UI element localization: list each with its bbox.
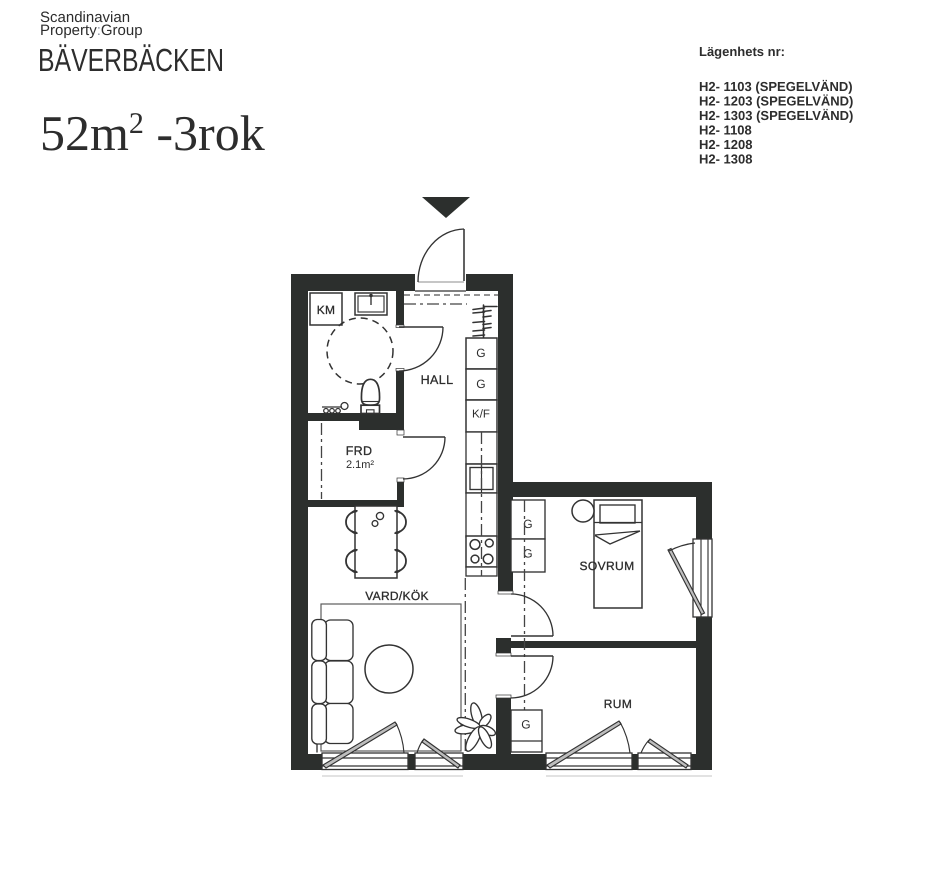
- svg-text:H2- 1308: H2- 1308: [699, 152, 752, 167]
- svg-text:Property:Group: Property:Group: [40, 22, 143, 39]
- svg-text:FRD: FRD: [346, 444, 373, 458]
- svg-text:H2- 1103 (SPEGELVÄND): H2- 1103 (SPEGELVÄND): [699, 79, 853, 94]
- svg-text:G: G: [476, 377, 486, 391]
- svg-text:BÄVERBÄCKEN: BÄVERBÄCKEN: [38, 42, 224, 78]
- svg-text:K/F: K/F: [472, 409, 490, 421]
- svg-text:VARD/KÖK: VARD/KÖK: [365, 589, 429, 603]
- svg-text:H2- 1208: H2- 1208: [699, 137, 752, 152]
- svg-text:RUM: RUM: [604, 697, 633, 711]
- svg-text:Lägenhets nr:: Lägenhets nr:: [699, 44, 785, 59]
- svg-text:KM: KM: [317, 303, 335, 317]
- svg-text:G: G: [521, 718, 531, 732]
- svg-text:H2- 1108: H2- 1108: [699, 123, 752, 138]
- svg-text:H2- 1203 (SPEGELVÄND): H2- 1203 (SPEGELVÄND): [699, 94, 853, 109]
- svg-text:G: G: [476, 346, 486, 360]
- svg-text:52m2 -3rok: 52m2 -3rok: [40, 105, 265, 161]
- svg-text:SOVRUM: SOVRUM: [579, 559, 634, 573]
- svg-text:H2- 1303 (SPEGELVÄND): H2- 1303 (SPEGELVÄND): [699, 108, 853, 123]
- svg-text:HALL: HALL: [421, 373, 454, 387]
- svg-text:2.1m²: 2.1m²: [346, 459, 374, 471]
